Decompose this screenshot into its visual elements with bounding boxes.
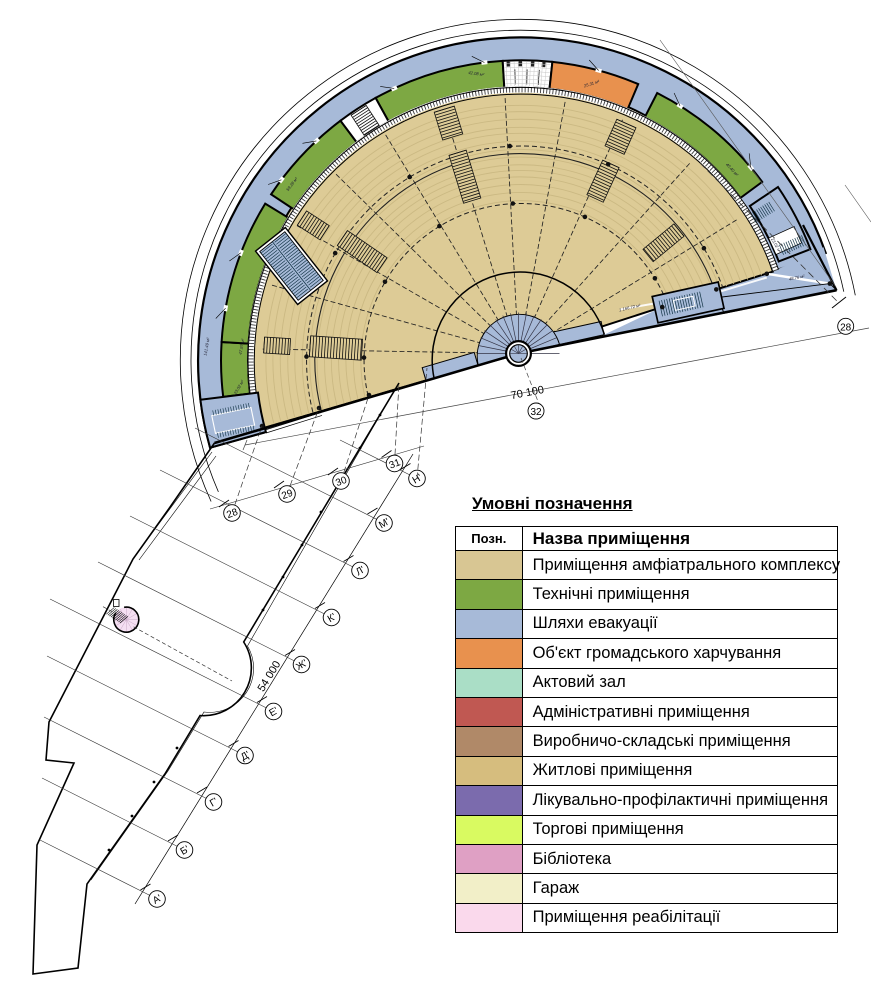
svg-text:28: 28 <box>840 322 852 333</box>
svg-text:70 100: 70 100 <box>510 384 545 402</box>
svg-text:32: 32 <box>530 407 542 418</box>
svg-text:54 000: 54 000 <box>256 659 284 694</box>
